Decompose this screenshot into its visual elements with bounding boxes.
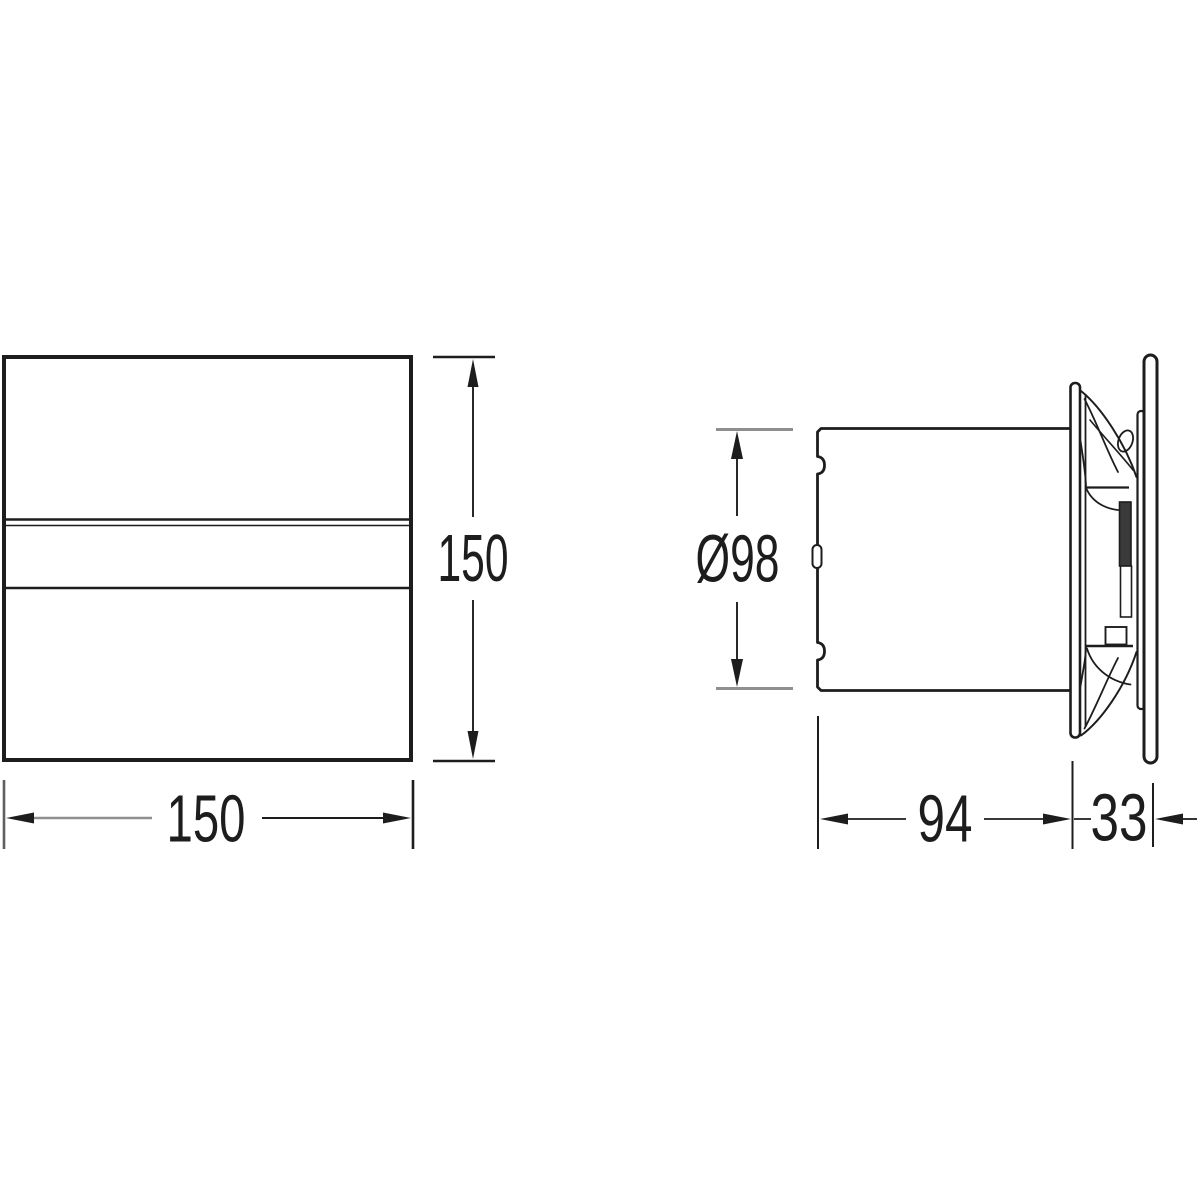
terminal-box [1106, 627, 1127, 645]
side-view [813, 355, 1158, 763]
arrowhead-down [468, 731, 479, 759]
arrowhead-up [731, 431, 743, 459]
front-panel-outline [4, 357, 411, 760]
arrowhead-right [1043, 814, 1071, 825]
dim-label-front-width: 150 [167, 782, 246, 857]
dim-label-panel-depth: 33 [1091, 781, 1148, 856]
arrowhead-right [383, 813, 411, 824]
dim-front-width: 150 [4, 780, 413, 857]
arrowhead-up [468, 359, 479, 387]
impeller-blade-top-inner [1085, 399, 1119, 472]
motor-hub-lower [1121, 566, 1132, 617]
front-view [4, 357, 411, 760]
dim-body-depth: 94 [818, 716, 1073, 857]
fan-body-outline [818, 429, 1072, 691]
dim-label-body-depth: 94 [918, 782, 973, 857]
arrowhead-left [820, 814, 848, 825]
mounting-flange [1071, 383, 1081, 738]
impeller-blade-bottom-inner [1085, 658, 1119, 729]
impeller-internals [1081, 391, 1137, 736]
fan-technical-drawing: 150 150 [0, 0, 1200, 1200]
motor-hub [1120, 502, 1132, 566]
arrowhead-down [731, 659, 743, 687]
dim-panel-depth: 33 [1074, 781, 1197, 856]
front-cover-panel [1144, 355, 1157, 763]
drawing-canvas: 150 150 [0, 0, 1200, 1200]
arrowhead-left [6, 813, 34, 824]
cable-slot [813, 545, 822, 568]
impeller-blade-bottom-outer [1081, 652, 1137, 736]
dim-label-front-height: 150 [438, 521, 509, 596]
dim-label-duct-diameter: Ø98 [696, 522, 780, 597]
dim-duct-diameter: Ø98 [696, 430, 794, 689]
arrowhead-left-outside [1155, 814, 1183, 825]
dim-front-height: 150 [433, 357, 509, 761]
